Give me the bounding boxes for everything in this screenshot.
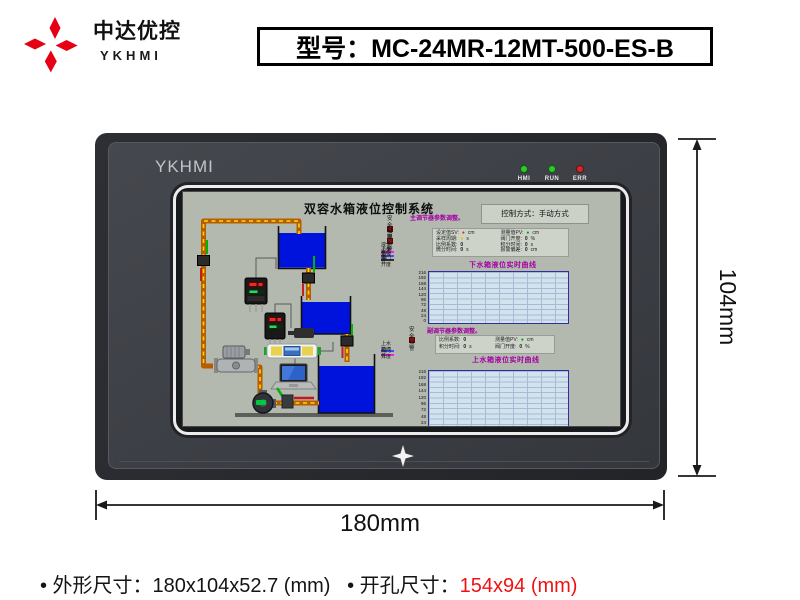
param-row: 积分时间: 0 s (439, 345, 495, 351)
brand-block: 中达优控 YKHMI (24, 15, 181, 73)
y-tick: 120 (418, 396, 426, 401)
chart1-title: 下水箱液位实时曲线 (469, 262, 537, 270)
curve-legend-1: 液位设定值 下水箱液位 电动阀门开度 (381, 251, 394, 261)
pump (253, 390, 276, 413)
led-label: RUN (545, 176, 560, 182)
param-value: 0 (463, 345, 466, 351)
y-tick: 216 (418, 370, 426, 375)
sub-regulator-params: 比例系数: 0 积分时间: 0 s 测量值PV: (435, 335, 555, 354)
alarm-indicator: 安全报警 (409, 337, 415, 343)
hmi-device-front-panel: YKHMI HMI RUN ERR (108, 142, 660, 469)
curve-legend-2: 上水箱液位 阀门开度 (381, 350, 394, 356)
y-tick: 144 (418, 389, 426, 394)
brand-name-en: YKHMI (93, 48, 181, 63)
spec-line: • 外形尺寸：180x104x52.7 (mm) • 开孔尺寸：154x94 (… (40, 569, 577, 598)
y-tick: 168 (418, 383, 426, 388)
spec-segment: • 开孔尺寸： (330, 575, 459, 597)
y-tick: 72 (421, 408, 426, 413)
brand-name-cn: 中达优控 (93, 15, 181, 45)
param-unit: % (525, 345, 529, 351)
param-value: 0 (519, 345, 522, 351)
param-row: 微分时间: 0 s (436, 248, 501, 254)
main-regulator-title: 主调节器参数调整。 (410, 216, 464, 223)
status-leds: HMI RUN ERR (513, 165, 591, 182)
status-led: RUN (541, 165, 563, 182)
bezel-brand-label: YKHMI (155, 157, 214, 177)
chart2-title: 上水箱液位实时曲线 (472, 357, 540, 365)
chart1-y-axis: 216192168144120967248240 (411, 271, 428, 324)
y-tick: 24 (421, 421, 426, 426)
param-label: 报警偏差: (501, 248, 522, 254)
param-value: 0 (525, 248, 528, 254)
lower-tank-trend-chart: 216192168144120967248240 (411, 271, 569, 324)
panel-seam-line (119, 461, 649, 462)
param-value: 0 (460, 248, 463, 254)
width-dimension-label: 180mm (280, 510, 480, 538)
upper-tank (279, 226, 326, 269)
screen-frame: 双容水箱液位控制系统 控制方式：手动方式 主调节器参数调整。 安全报警 越限报警 (173, 185, 629, 435)
param-label: 阀门开度: (495, 345, 516, 351)
led-dot-icon (548, 165, 556, 173)
ykhmi-pinwheel-logo-icon (24, 17, 78, 73)
laptop (271, 364, 316, 389)
flow-meter (264, 344, 321, 358)
led-dot-icon (520, 165, 528, 173)
pid-controller-2 (265, 313, 285, 344)
alarm-label: 安全报警 (409, 327, 415, 352)
hmi-device-body: YKHMI HMI RUN ERR (95, 133, 667, 480)
spec-segment: • 外形尺寸：180x104x52.7 (mm) (40, 575, 330, 597)
chart1-plot-area (428, 271, 569, 324)
pid-controller-1 (245, 278, 267, 312)
product-sheet: 中达优控 YKHMI 型号：MC-24MR-12MT-500-ES-B YKHM… (0, 0, 800, 600)
led-dot-icon (576, 165, 584, 173)
screen-title: 双容水箱液位控制系统 (304, 203, 434, 217)
param-row: 阀门开度: 0 % (495, 345, 551, 351)
model-number-box: 型号：MC-24MR-12MT-500-ES-B (257, 27, 713, 66)
param-column: 比例系数: 0 积分时间: 0 s (439, 338, 495, 351)
spec-segment: 154x94 (mm) (460, 575, 578, 597)
param-column: 设定值SV: ● cm 采样周期: ● s 比例系数: 0 (436, 231, 501, 254)
param-unit: s (466, 248, 469, 254)
legend-item: 阀门开度 (381, 354, 394, 356)
param-label: 微分时间: (436, 248, 457, 254)
param-column: 测量值PV: ● cm 阀门开度: 0 % 积分时间: 0 s (501, 231, 566, 254)
status-led: ERR (569, 165, 591, 182)
upper-tank-trend-chart: 216192168144120967248240 (411, 370, 569, 427)
legend-label: 电动阀门开度 (381, 251, 394, 268)
y-tick: 192 (418, 376, 426, 381)
legend-label: 阀门开度 (381, 349, 394, 361)
param-row: 报警偏差: 0 cm (501, 248, 566, 254)
hmi-touchscreen: 双容水箱液位控制系统 控制方式：手动方式 主调节器参数调整。 安全报警 越限报警 (182, 191, 621, 427)
status-led: HMI (513, 165, 535, 182)
motorized-valve (214, 346, 258, 373)
y-tick: 48 (421, 415, 426, 420)
control-mode-box: 控制方式：手动方式 (481, 204, 589, 224)
y-tick: 0 (423, 319, 426, 324)
height-dimension-label: 104mm (688, 267, 768, 347)
param-label: 积分时间: (439, 345, 460, 351)
y-tick: 144 (418, 287, 426, 292)
y-tick: 96 (421, 402, 426, 407)
brand-names: 中达优控 YKHMI (93, 15, 181, 73)
param-unit: s (469, 345, 472, 351)
main-regulator-params: 设定值SV: ● cm 采样周期: ● s 比例系数: 0 (432, 228, 569, 257)
bottom-star-logo-icon (391, 444, 415, 468)
chart2-y-axis: 216192168144120967248240 (411, 370, 428, 427)
legend-item: 电动阀门开度 (381, 259, 394, 261)
led-label: HMI (518, 176, 531, 182)
chart2-plot-area (428, 370, 569, 427)
lower-tank (319, 354, 375, 413)
param-unit: cm (531, 248, 538, 254)
led-label: ERR (573, 176, 587, 182)
level-sensor (288, 328, 314, 338)
param-column: 测量值PV: ● cm 阀门开度: 0 % (495, 338, 551, 351)
